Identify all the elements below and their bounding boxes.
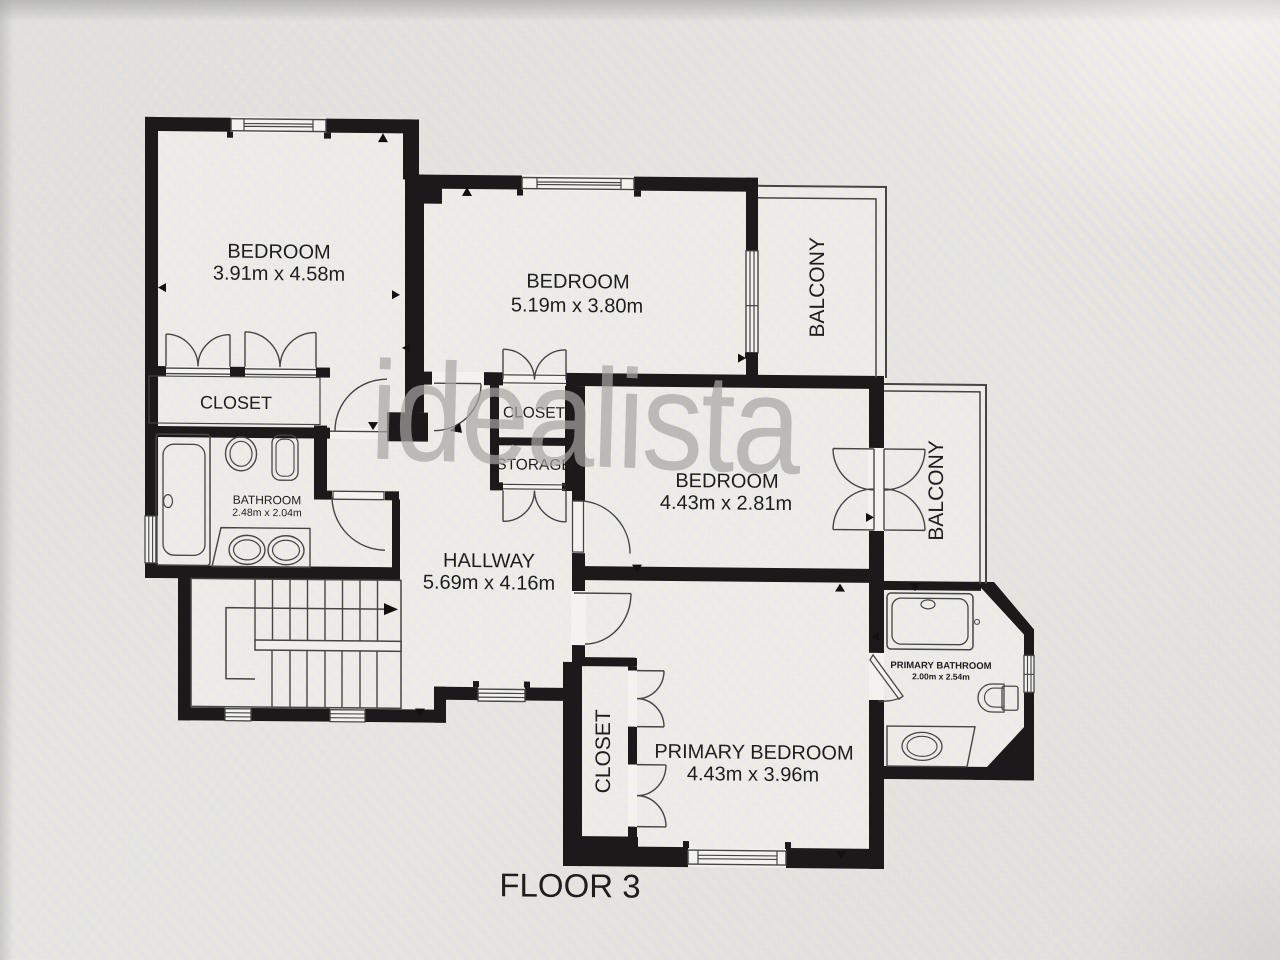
svg-text:4.43m x 3.96m: 4.43m x 3.96m (687, 763, 819, 786)
svg-text:BATHROOM: BATHROOM (233, 493, 301, 508)
svg-text:2.48m x 2.04m: 2.48m x 2.04m (232, 507, 302, 520)
svg-text:PRIMARY BATHROOM: PRIMARY BATHROOM (890, 660, 991, 672)
svg-text:FLOOR 3: FLOOR 3 (499, 866, 640, 904)
svg-text:BALCONY: BALCONY (925, 440, 948, 541)
svg-text:3.91m x 4.58m: 3.91m x 4.58m (213, 263, 345, 286)
svg-text:PRIMARY BEDROOM: PRIMARY BEDROOM (654, 741, 853, 765)
svg-text:CLOSET: CLOSET (592, 709, 615, 793)
svg-text:2.00m x 2.54m: 2.00m x 2.54m (912, 671, 970, 682)
svg-text:BEDROOM: BEDROOM (227, 241, 330, 264)
svg-text:HALLWAY: HALLWAY (443, 550, 535, 573)
svg-text:5.69m x 4.16m: 5.69m x 4.16m (423, 572, 555, 595)
svg-text:CLOSET: CLOSET (200, 392, 272, 413)
